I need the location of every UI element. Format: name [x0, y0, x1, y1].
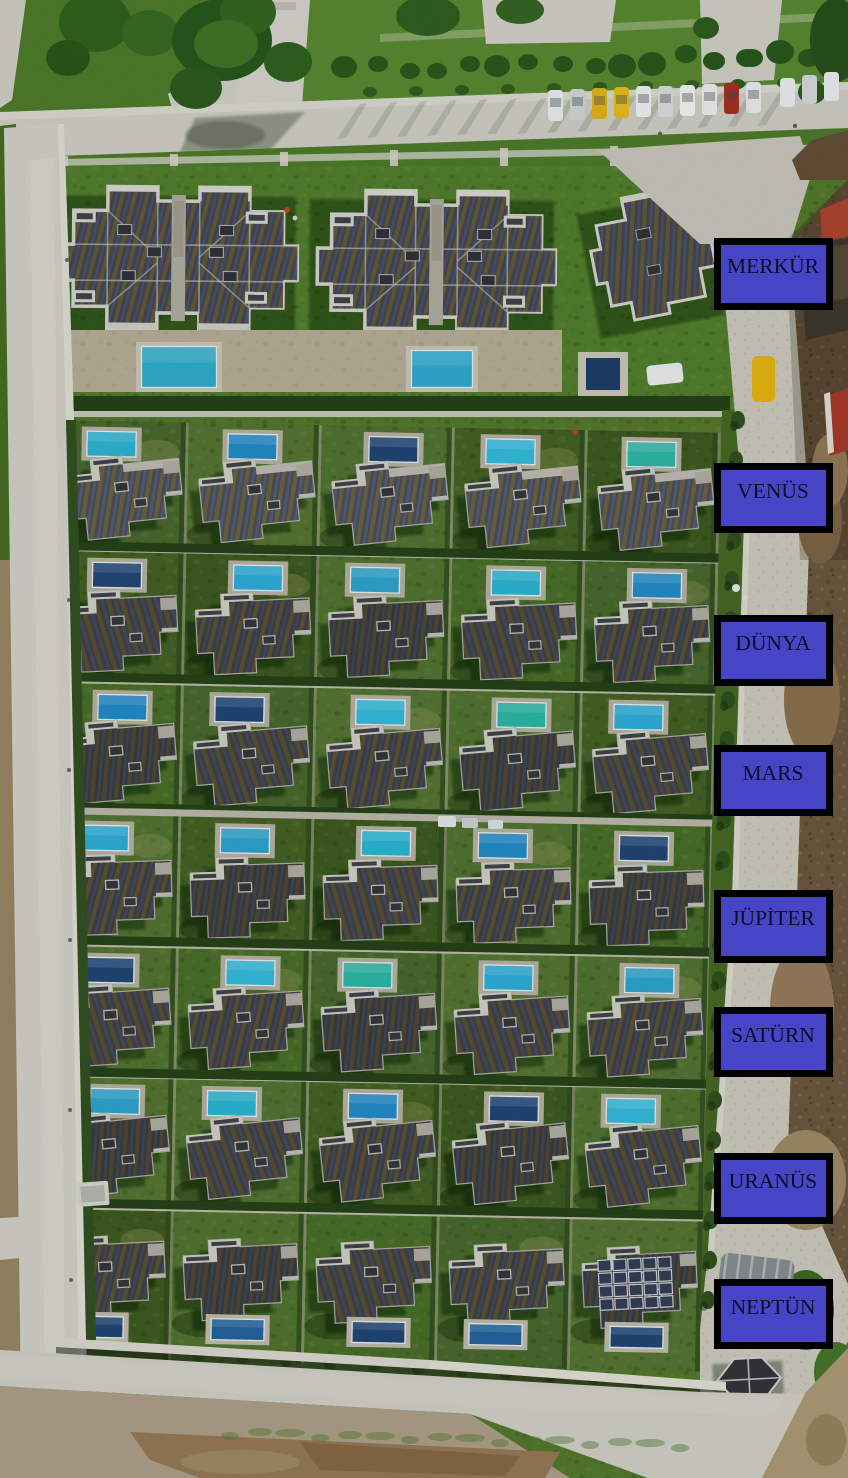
svg-text:MARS: MARS: [743, 761, 804, 785]
svg-text:MERKÜR: MERKÜR: [727, 254, 820, 278]
svg-text:URANÜS: URANÜS: [729, 1169, 817, 1193]
svg-text:JÜPİTER: JÜPİTER: [731, 906, 815, 930]
svg-text:VENÜS: VENÜS: [737, 479, 809, 503]
svg-text:NEPTÜN: NEPTÜN: [731, 1295, 816, 1319]
svg-text:DÜNYA: DÜNYA: [735, 631, 811, 655]
svg-text:SATÜRN: SATÜRN: [731, 1023, 815, 1047]
